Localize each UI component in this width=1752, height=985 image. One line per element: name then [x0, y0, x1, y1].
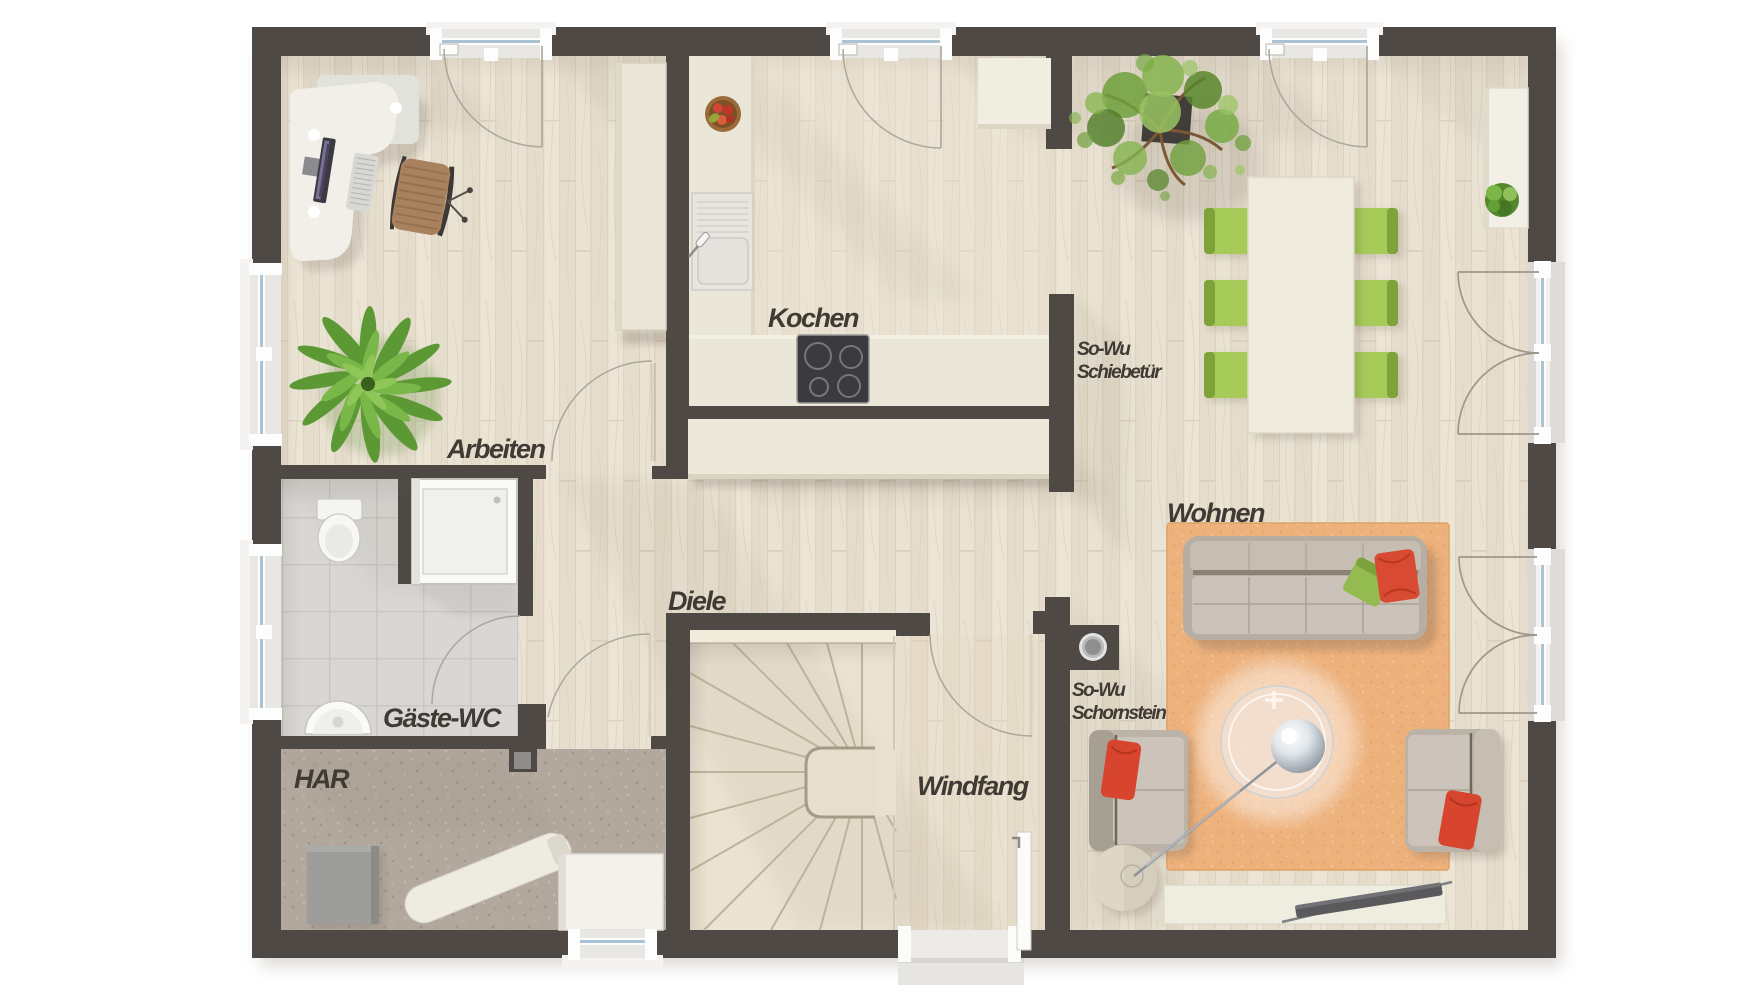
svg-text:HAR: HAR — [294, 764, 350, 794]
svg-text:So-Wu: So-Wu — [1077, 339, 1131, 360]
svg-text:Schiebetür: Schiebetür — [1077, 362, 1163, 383]
svg-text:Gäste-WC: Gäste-WC — [383, 703, 502, 733]
svg-text:Diele: Diele — [668, 586, 727, 616]
svg-text:Schornstein: Schornstein — [1072, 703, 1166, 724]
svg-text:Kochen: Kochen — [768, 303, 859, 333]
svg-text:Windfang: Windfang — [917, 771, 1030, 801]
svg-text:So-Wu: So-Wu — [1072, 680, 1126, 701]
svg-text:Wohnen: Wohnen — [1167, 498, 1265, 528]
svg-text:Arbeiten: Arbeiten — [446, 434, 546, 464]
